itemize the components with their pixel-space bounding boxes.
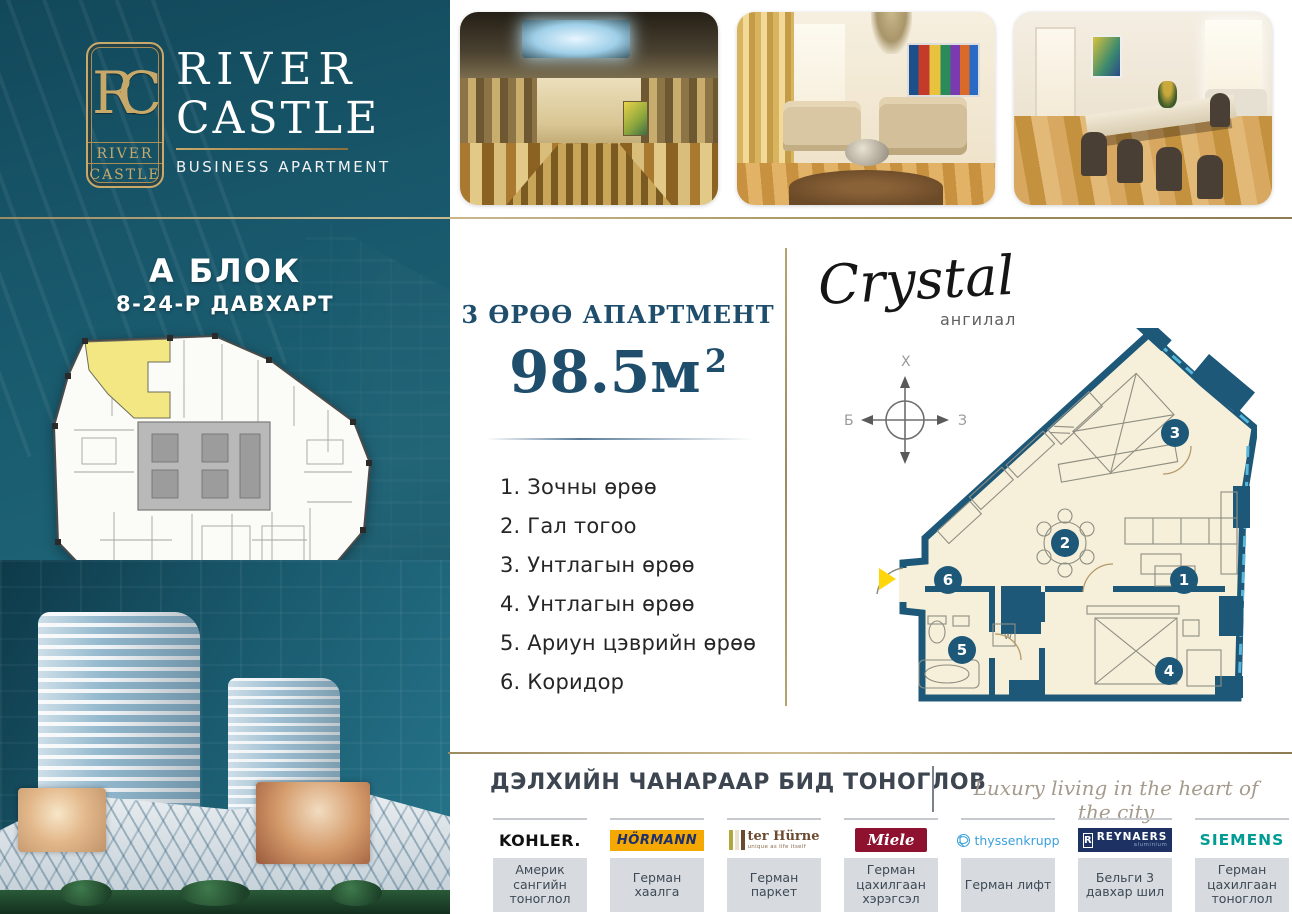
brand-desc: Герман паркет bbox=[727, 858, 821, 912]
gold-rule-bottom bbox=[448, 752, 1292, 754]
photo-lobby bbox=[460, 12, 718, 205]
billboard-right bbox=[256, 782, 370, 864]
footer-divider bbox=[932, 766, 934, 812]
logo-word-castle: CASTLE bbox=[88, 163, 162, 183]
compass-west-label: Б bbox=[844, 413, 854, 429]
thyssenkrupp-icon bbox=[956, 833, 971, 848]
room-1-badge: 1 bbox=[1179, 571, 1189, 589]
brand-title-line1: RIVER bbox=[176, 46, 391, 94]
bush bbox=[180, 880, 250, 906]
miele-logo: Miele bbox=[844, 825, 938, 855]
footer-headline: ДЭЛХИЙН ЧАНАРААР БИД ТОНОГЛОВ bbox=[490, 770, 987, 795]
photo-living-room bbox=[737, 12, 995, 205]
plan-class-label: ангилал bbox=[940, 310, 1016, 329]
room-list-item: 6. Коридор bbox=[500, 663, 780, 702]
room-4-badge: 4 bbox=[1164, 662, 1174, 680]
room-5-badge: 5 bbox=[957, 641, 967, 659]
block-title: А БЛОК bbox=[0, 252, 450, 290]
plan-class-name: Crystal bbox=[817, 242, 1050, 317]
room-list-item: 3. Унтлагын өрөө bbox=[500, 546, 780, 585]
area-superscript: 2 bbox=[705, 342, 727, 380]
apartment-area: 98.5м2 bbox=[460, 338, 776, 406]
block-subtitle: 8-24-Р ДАВХАРТ bbox=[0, 292, 450, 316]
room-list: 1. Зочны өрөө 2. Гал тогоо 3. Унтлагын ө… bbox=[500, 468, 780, 702]
brand-desc: Бельги 3 давхар шил bbox=[1078, 858, 1172, 912]
terhurne-logo: ter Hürne unique as life itself bbox=[727, 825, 821, 855]
apartment-type-label: 3 ӨРӨӨ АПАРТМЕНТ bbox=[460, 300, 776, 329]
room-list-item: 1. Зочны өрөө bbox=[500, 468, 780, 507]
brand-card-kohler: KOHLER. Америк сангийн тоноглол bbox=[493, 818, 587, 912]
brand-desc: Герман лифт bbox=[961, 858, 1055, 912]
room-2-badge: 2 bbox=[1060, 534, 1070, 552]
brand-card-reynaers: R REYNAERS aluminium Бельги 3 давхар шил bbox=[1078, 818, 1172, 912]
photo-dining-room bbox=[1014, 12, 1272, 205]
logo-word-river: RIVER bbox=[88, 142, 162, 162]
brand-card-siemens: SIEMENS Герман цахилгаан тоноглол bbox=[1195, 818, 1289, 912]
brand-card-terhurne: ter Hürne unique as life itself Герман п… bbox=[727, 818, 821, 912]
brand-card-hormann: HÖRMANN Герман хаалга bbox=[610, 818, 704, 912]
area-divider bbox=[486, 438, 754, 440]
brand-desc: Америк сангийн тоноглол bbox=[493, 858, 587, 912]
brand-desc: Герман цахилгаан хэрэгсэл bbox=[844, 858, 938, 912]
brand-card-miele: Miele Герман цахилгаан хэрэгсэл bbox=[844, 818, 938, 912]
room-3-badge: 3 bbox=[1170, 424, 1180, 442]
bush bbox=[330, 880, 382, 906]
siemens-logo: SIEMENS bbox=[1195, 825, 1289, 855]
brand-card-thyssenkrupp: thyssenkrupp Герман лифт bbox=[961, 818, 1055, 912]
room-list-item: 2. Гал тогоо bbox=[500, 507, 780, 546]
logo-monogram: RC bbox=[88, 54, 162, 132]
brand-header: RC RIVER CASTLE RIVER CASTLE BUSINESS AP… bbox=[0, 0, 450, 212]
brand-desc: Герман цахилгаан тоноглол bbox=[1195, 858, 1289, 912]
footer-tagline: Luxury living in the heart of the city bbox=[956, 776, 1276, 824]
river-castle-logo: RC RIVER CASTLE bbox=[86, 42, 164, 188]
brand-title: RIVER CASTLE BUSINESS APARTMENT bbox=[176, 46, 391, 176]
brochure-page: RC RIVER CASTLE RIVER CASTLE BUSINESS AP… bbox=[0, 0, 1292, 914]
room-list-item: 4. Унтлагын өрөө bbox=[500, 585, 780, 624]
billboard-left bbox=[18, 788, 106, 852]
room-list-item: 5. Ариун цэврийн өрөө bbox=[500, 624, 780, 663]
gold-rule-top bbox=[0, 217, 1292, 219]
reynaers-logo: R REYNAERS aluminium bbox=[1078, 825, 1172, 855]
brand-subtitle: BUSINESS APARTMENT bbox=[176, 158, 391, 176]
brand-title-line2: CASTLE bbox=[176, 94, 391, 144]
brand-row: KOHLER. Америк сангийн тоноглол HÖRMANN … bbox=[493, 818, 1289, 912]
brand-underline bbox=[176, 148, 348, 150]
apartment-floorplan: W 1 2 3 4 5 6 bbox=[875, 328, 1257, 712]
room-6-badge: 6 bbox=[943, 571, 953, 589]
gold-rule-vertical bbox=[785, 248, 787, 706]
hormann-logo: HÖRMANN bbox=[610, 825, 704, 855]
brand-desc: Герман хаалга bbox=[610, 858, 704, 912]
bush bbox=[60, 880, 112, 906]
building-render bbox=[0, 560, 450, 914]
left-panel: RC RIVER CASTLE RIVER CASTLE BUSINESS AP… bbox=[0, 0, 450, 914]
kohler-logo: KOHLER. bbox=[493, 825, 587, 855]
thyssenkrupp-logo: thyssenkrupp bbox=[961, 825, 1055, 855]
terhurne-bars bbox=[729, 830, 745, 850]
